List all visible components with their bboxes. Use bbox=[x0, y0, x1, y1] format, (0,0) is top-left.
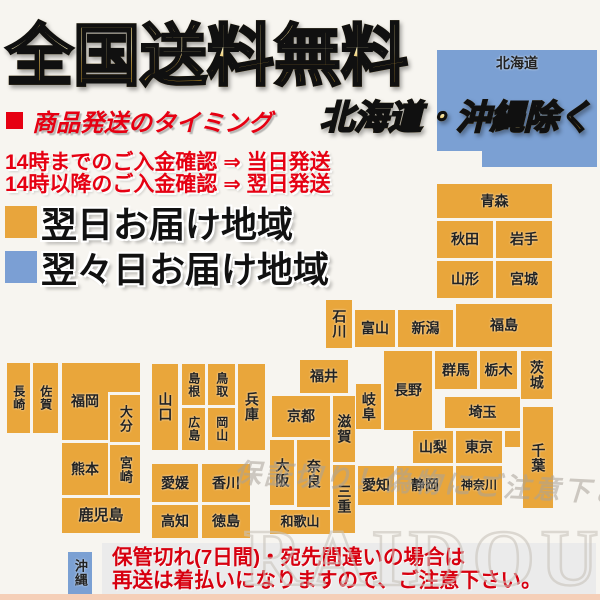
map-tile-nagano: 長野 bbox=[384, 351, 432, 430]
map-tile-yamanashi: 山梨 bbox=[413, 431, 453, 463]
map-tile-label-miyagi: 宮城 bbox=[510, 272, 538, 287]
map-tile-label-gunma: 群馬 bbox=[442, 363, 470, 378]
map-tile-hiroshima: 広島 bbox=[182, 408, 205, 450]
red-square-bullet-icon bbox=[6, 112, 23, 129]
legend-two-day-label: 翌々日お届け地域 bbox=[41, 241, 329, 293]
map-tile-shiga: 滋賀 bbox=[333, 396, 355, 462]
map-tile-kagoshima: 鹿児島 bbox=[62, 498, 140, 533]
map-tile-label-hyogo: 兵庫 bbox=[244, 392, 259, 422]
map-tile-label-nagasaki: 長崎 bbox=[12, 385, 25, 411]
map-tile-nagasaki: 長崎 bbox=[7, 363, 30, 433]
map-tile-ishikawa: 石川 bbox=[326, 300, 352, 348]
map-tile-label-kochi: 高知 bbox=[161, 514, 189, 529]
map-tile-fukushima: 福島 bbox=[456, 304, 552, 347]
map-tile-yamaguchi: 山口 bbox=[152, 364, 178, 450]
map-tile-tochigi: 栃木 bbox=[480, 351, 517, 389]
map-tile-okayama: 岡山 bbox=[208, 408, 235, 450]
map-tile-akita: 秋田 bbox=[437, 221, 493, 258]
map-tile-label-toyama: 富山 bbox=[361, 321, 389, 336]
map-tile-label-okayama: 岡山 bbox=[215, 416, 228, 442]
map-tile-label-tokushima: 徳島 bbox=[212, 514, 240, 529]
map-tile-label-akita: 秋田 bbox=[451, 232, 479, 247]
map-tile-label-ibaraki: 茨城 bbox=[529, 360, 544, 390]
exclusion-note: 北海道・沖縄除く bbox=[320, 90, 592, 139]
map-tile-label-fukushima: 福島 bbox=[490, 318, 518, 333]
map-tile-fukuoka-ext bbox=[108, 363, 140, 392]
map-tile-label-niigata: 新潟 bbox=[412, 321, 440, 336]
map-tile-yamagata: 山形 bbox=[437, 261, 493, 298]
map-tile-tokushima: 徳島 bbox=[202, 505, 250, 538]
map-tile-ehime: 愛媛 bbox=[152, 464, 198, 502]
map-tile-label-ishikawa: 石川 bbox=[332, 309, 347, 339]
map-tile-hokkaido-tab bbox=[482, 150, 597, 167]
map-tile-gunma: 群馬 bbox=[435, 351, 477, 389]
map-tile-fukui: 福井 bbox=[300, 360, 348, 393]
map-tile-saitama: 埼玉 bbox=[445, 397, 520, 428]
map-tile-label-hokkaido: 北海道 bbox=[496, 56, 538, 71]
blue-square-icon bbox=[5, 251, 37, 283]
map-tile-label-hiroshima: 広島 bbox=[187, 416, 200, 442]
map-tile-label-okinawa: 沖縄 bbox=[73, 559, 87, 587]
map-tile-aomori: 青森 bbox=[437, 184, 552, 218]
map-tile-label-aomori: 青森 bbox=[481, 194, 509, 209]
map-tile-okinawa: 沖縄 bbox=[68, 552, 92, 594]
watermark-brand-text: RAIDOU bbox=[244, 514, 600, 600]
map-tile-saitama-filler bbox=[505, 431, 520, 447]
map-tile-label-miyazaki: 宮崎 bbox=[118, 456, 132, 484]
map-tile-label-yamaguchi: 山口 bbox=[158, 392, 173, 422]
map-tile-niigata: 新潟 bbox=[398, 310, 453, 347]
map-tile-label-tokyo: 東京 bbox=[465, 440, 493, 455]
map-tile-label-fukui: 福井 bbox=[310, 369, 338, 384]
map-tile-miyazaki: 宮崎 bbox=[110, 445, 140, 495]
timing-heading-label: 商品発送のタイミング bbox=[32, 103, 272, 138]
map-tile-kochi: 高知 bbox=[152, 505, 198, 538]
map-tile-label-saga: 佐賀 bbox=[39, 385, 52, 411]
map-tile-label-fukuoka: 福岡 bbox=[71, 394, 99, 409]
map-tile-label-tottori: 鳥取 bbox=[215, 372, 228, 398]
map-tile-kyoto: 京都 bbox=[272, 396, 330, 437]
map-tile-label-nagano: 長野 bbox=[394, 383, 422, 398]
map-tile-saga: 佐賀 bbox=[33, 363, 58, 433]
map-tile-kumamoto: 熊本 bbox=[62, 443, 108, 495]
map-tile-label-kyoto: 京都 bbox=[287, 409, 315, 424]
map-tile-label-shiga: 滋賀 bbox=[337, 414, 352, 444]
map-tile-label-tochigi: 栃木 bbox=[485, 363, 513, 378]
map-tile-label-ehime: 愛媛 bbox=[161, 476, 189, 491]
map-tile-tottori: 鳥取 bbox=[208, 364, 235, 405]
map-tile-miyagi: 宮城 bbox=[496, 261, 552, 298]
map-tile-fukuoka: 福岡 bbox=[62, 363, 108, 440]
map-tile-label-iwate: 岩手 bbox=[510, 232, 538, 247]
map-tile-label-yamanashi: 山梨 bbox=[419, 440, 447, 455]
map-tile-ibaraki: 茨城 bbox=[521, 351, 552, 399]
map-tile-label-shimane: 島根 bbox=[187, 372, 200, 398]
map-tile-label-kagoshima: 鹿児島 bbox=[78, 508, 123, 524]
timing-heading: 商品発送のタイミング bbox=[6, 103, 272, 138]
map-tile-gifu: 岐阜 bbox=[356, 384, 381, 429]
map-tile-hyogo: 兵庫 bbox=[238, 364, 265, 450]
map-tile-oita: 大分 bbox=[110, 395, 140, 442]
map-tile-label-saitama: 埼玉 bbox=[469, 405, 497, 420]
map-tile-label-oita: 大分 bbox=[118, 405, 132, 433]
map-tile-shimane: 島根 bbox=[182, 364, 205, 405]
map-tile-toyama: 富山 bbox=[355, 310, 395, 347]
map-tile-label-kumamoto: 熊本 bbox=[71, 462, 99, 477]
map-tile-label-yamagata: 山形 bbox=[451, 272, 479, 287]
orange-square-icon bbox=[5, 206, 37, 238]
shipping-banner: 北海道青森秋田岩手山形宮城石川富山新潟福島群馬栃木茨城長野岐阜埼玉山梨東京千葉神… bbox=[0, 0, 600, 600]
map-tile-iwate: 岩手 bbox=[496, 221, 552, 258]
map-tile-label-gifu: 岐阜 bbox=[361, 392, 376, 422]
legend-two-day: 翌々日お届け地域 bbox=[5, 241, 329, 293]
map-tile-tokyo: 東京 bbox=[456, 431, 502, 463]
